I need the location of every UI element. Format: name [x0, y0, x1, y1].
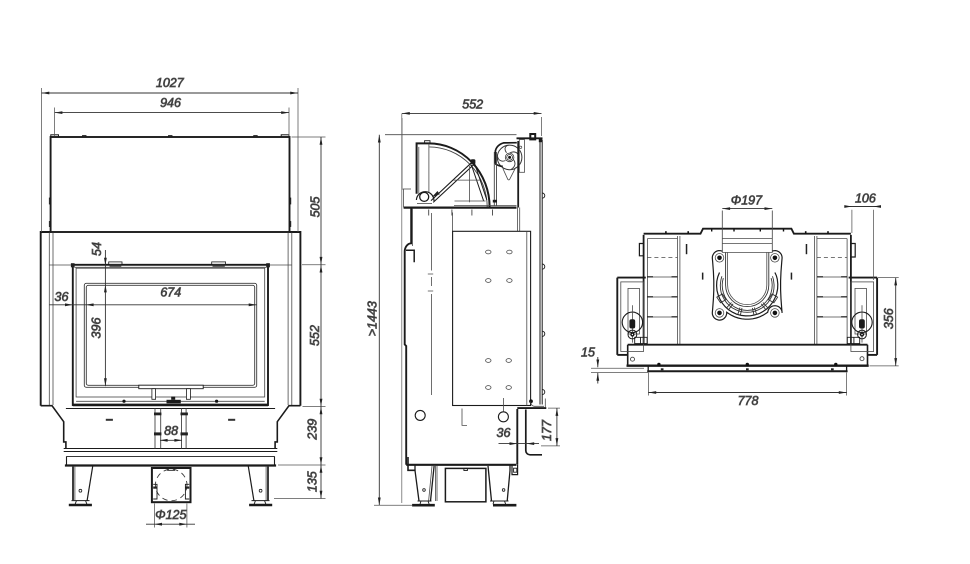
svg-text:Φ197: Φ197 — [731, 193, 763, 207]
svg-text:239: 239 — [306, 419, 320, 441]
svg-text:Φ125: Φ125 — [155, 508, 186, 522]
svg-text:505: 505 — [308, 197, 322, 218]
svg-text:36: 36 — [497, 426, 511, 440]
svg-text:778: 778 — [738, 394, 759, 408]
svg-text:552: 552 — [308, 325, 322, 346]
svg-text:135: 135 — [306, 471, 320, 492]
svg-text:177: 177 — [540, 419, 554, 441]
svg-text:674: 674 — [160, 286, 181, 300]
svg-text:552: 552 — [462, 97, 483, 111]
svg-text:15: 15 — [581, 346, 595, 360]
svg-text:88: 88 — [164, 424, 178, 438]
svg-text:54: 54 — [90, 242, 104, 256]
svg-text:>1443: >1443 — [366, 301, 380, 336]
svg-text:36: 36 — [55, 290, 69, 304]
svg-text:106: 106 — [855, 192, 876, 206]
svg-text:356: 356 — [882, 308, 896, 329]
svg-text:946: 946 — [160, 96, 181, 110]
svg-text:396: 396 — [89, 318, 103, 339]
svg-text:1027: 1027 — [156, 76, 185, 90]
